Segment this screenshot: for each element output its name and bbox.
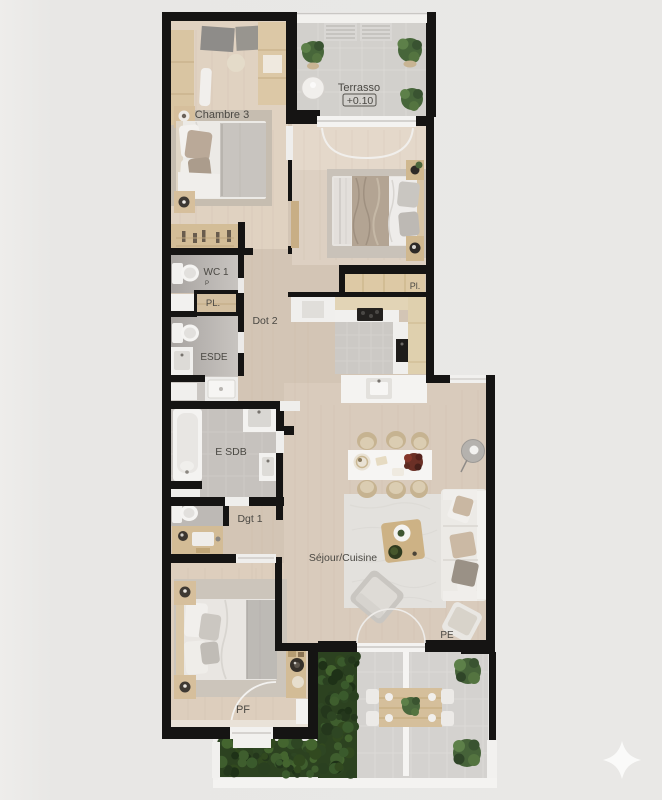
svg-text:Chambre 3: Chambre 3 xyxy=(195,109,249,121)
svg-text:PL.: PL. xyxy=(206,298,220,309)
svg-text:Terrasso: Terrasso xyxy=(338,82,380,94)
svg-text:+0.10: +0.10 xyxy=(347,95,374,107)
svg-text:Dot 2: Dot 2 xyxy=(252,315,277,327)
svg-text:Séjour/Cuisine: Séjour/Cuisine xyxy=(309,552,377,564)
svg-text:PE: PE xyxy=(440,630,454,641)
svg-text:Dgt 1: Dgt 1 xyxy=(237,513,262,525)
svg-text:PF: PF xyxy=(236,704,250,716)
svg-text:WC 1: WC 1 xyxy=(204,267,229,278)
svg-text:E SDB: E SDB xyxy=(215,446,247,458)
svg-text:P: P xyxy=(205,281,209,287)
svg-text:ESDE: ESDE xyxy=(200,352,228,363)
svg-text:Pl.: Pl. xyxy=(410,281,421,291)
